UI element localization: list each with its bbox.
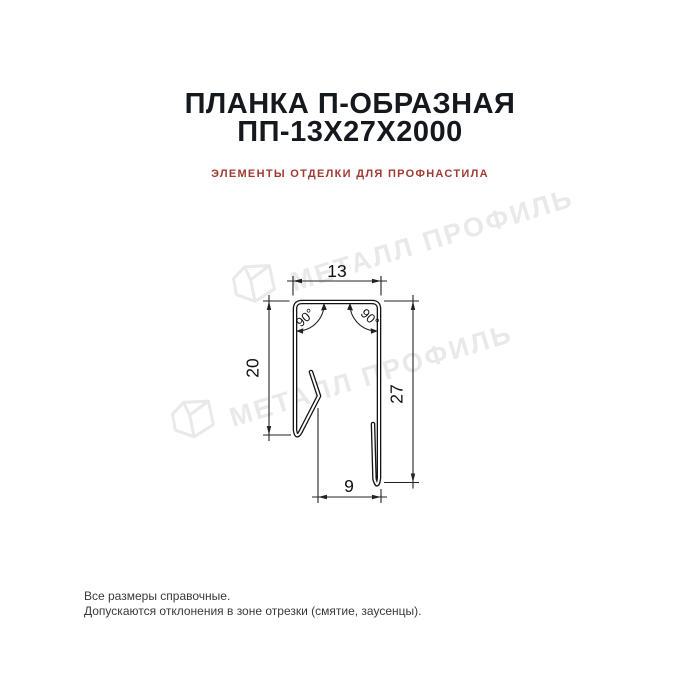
arrow (372, 279, 381, 283)
brand-logo-icon (229, 260, 278, 306)
product-drawing-page: МЕТАЛЛ ПРОФИЛЬ МЕТАЛЛ ПРОФИЛЬ (0, 0, 700, 700)
footer-note-line2: Допускаются отклонения в зоне отрезки (с… (84, 604, 421, 619)
brand-watermark-top: МЕТАЛЛ ПРОФИЛЬ (229, 169, 577, 314)
page-title-line1: ПЛАНКА П-ОБРАЗНАЯ (0, 90, 700, 118)
page-title-line2: ПП-13Х27Х2000 (0, 118, 700, 146)
arrow (267, 301, 271, 310)
arrow (318, 495, 327, 499)
footer-notes: Все размеры справочные. Допускаются откл… (84, 589, 421, 619)
brand-watermark-middle: МЕТАЛЛ ПРОФИЛЬ (168, 305, 516, 450)
arrow (411, 301, 415, 310)
dim-label-top-width: 13 (327, 261, 346, 281)
arrow (372, 495, 381, 499)
dim-label-left-height: 20 (243, 358, 263, 378)
page-subtitle: ЭЛЕМЕНТЫ ОТДЕЛКИ ДЛЯ ПРОФНАСТИЛА (0, 168, 700, 180)
footer-note-line1: Все размеры справочные. (84, 589, 421, 604)
brand-logo-icon (168, 395, 217, 441)
dim-label-right-height: 27 (387, 384, 407, 403)
page-title: ПЛАНКА П-ОБРАЗНАЯ ПП-13Х27Х2000 (0, 90, 700, 146)
arrow (411, 474, 415, 483)
dim-label-bottom-width: 9 (344, 476, 354, 496)
arrow (267, 426, 271, 435)
